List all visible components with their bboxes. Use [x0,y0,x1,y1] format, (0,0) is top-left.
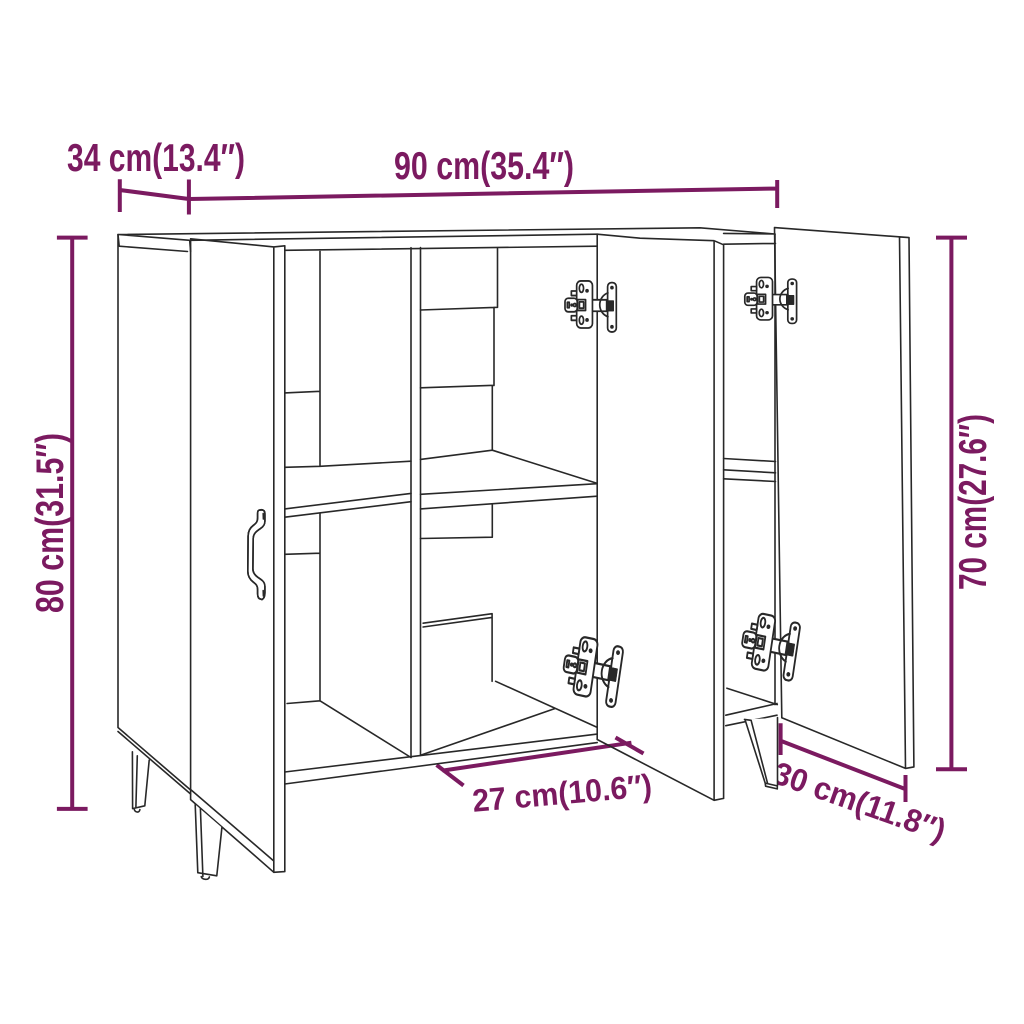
svg-text:34 cm(13.4″): 34 cm(13.4″) [67,137,245,180]
svg-text:80 cm(31.5″): 80 cm(31.5″) [29,433,72,613]
svg-text:70 cm(27.6″): 70 cm(27.6″) [952,414,995,590]
svg-text:90 cm(35.4″): 90 cm(35.4″) [394,145,574,188]
